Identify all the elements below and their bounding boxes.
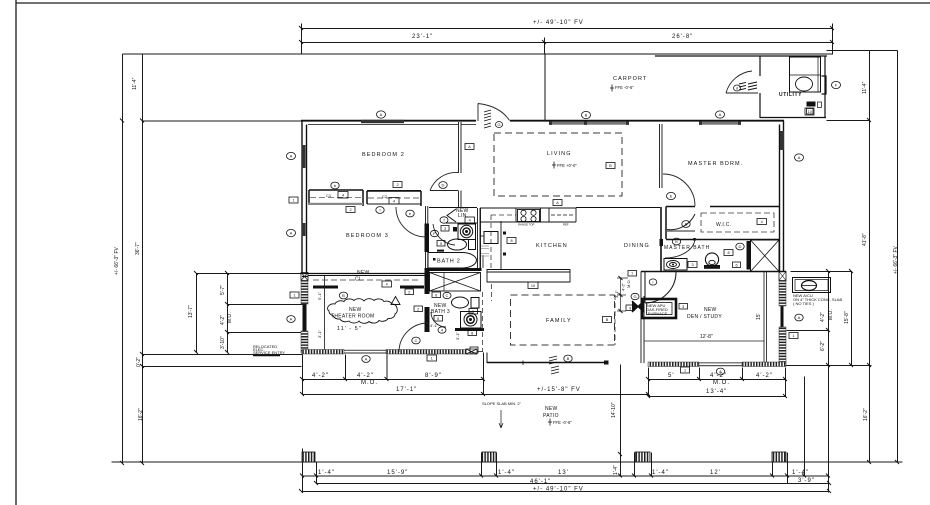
svg-text:+/-15'-8" FV: +/-15'-8" FV (537, 387, 581, 393)
svg-text:5: 5 (437, 317, 439, 321)
svg-text:D: D (442, 183, 445, 188)
svg-text:FURNACE: FURNACE (648, 311, 668, 316)
svg-text:A: A (798, 315, 801, 320)
svg-text:+/- 66'-3" FV: +/- 66'-3" FV (114, 246, 120, 275)
svg-text:1: 1 (292, 199, 294, 203)
svg-text:d: d (736, 86, 738, 91)
svg-text:2: 2 (408, 291, 410, 295)
svg-text:17'-1": 17'-1" (396, 387, 417, 393)
svg-text:M.O.: M.O. (713, 380, 730, 386)
svg-text:BATH 3: BATH 3 (431, 309, 450, 315)
svg-text:4'-2": 4'-2" (756, 373, 773, 379)
svg-text:+/- 49'-10" FV: +/- 49'-10" FV (533, 487, 584, 493)
svg-text:LIVING: LIVING (547, 151, 572, 157)
svg-text:FFE -0'-6": FFE -0'-6" (553, 420, 572, 425)
svg-text:1: 1 (431, 357, 433, 361)
svg-text:D: D (739, 244, 742, 249)
svg-text:3: 3 (444, 227, 446, 231)
svg-text:MASTER BATH: MASTER BATH (664, 245, 710, 251)
svg-text:15'-8": 15'-8" (844, 311, 850, 324)
svg-text:M.O.: M.O. (361, 380, 378, 386)
svg-text:PATIO: PATIO (543, 413, 559, 419)
svg-text:3: 3 (472, 310, 474, 314)
svg-text:11'-4": 11'-4" (862, 81, 868, 94)
svg-text:4: 4 (469, 219, 471, 223)
svg-text:12'-8": 12'-8" (700, 334, 713, 340)
svg-text:3: 3 (691, 263, 693, 267)
svg-text:C1: C1 (326, 193, 332, 198)
svg-text:B: B (567, 356, 570, 361)
svg-text:14'-10": 14'-10" (611, 402, 617, 418)
svg-text:3: 3 (682, 305, 684, 309)
svg-text:6'-2": 6'-2" (820, 341, 826, 351)
svg-text:6: 6 (435, 294, 437, 298)
svg-text:FFE +0'-0": FFE +0'-0" (557, 163, 577, 168)
svg-text:4'-2": 4'-2" (220, 315, 226, 325)
svg-text:4'-1": 4'-1" (430, 323, 439, 328)
svg-text:13': 13' (558, 470, 569, 476)
svg-text:16'-2": 16'-2" (863, 408, 869, 421)
svg-text:REF: REF (563, 223, 569, 227)
svg-text:4'-2": 4'-2" (312, 373, 329, 379)
svg-text:A: A (290, 231, 293, 236)
svg-text:A: A (290, 317, 293, 322)
svg-text:26'-8": 26'-8" (672, 34, 693, 40)
svg-text:A: A (290, 154, 293, 159)
svg-text:3'-10": 3'-10" (220, 336, 226, 349)
svg-text:11'-4": 11'-4" (132, 77, 138, 90)
svg-text:+/- 66'-3" FV: +/- 66'-3" FV (893, 245, 899, 274)
svg-text:G: G (497, 122, 500, 127)
svg-text:13'-4": 13'-4" (706, 389, 727, 395)
svg-text:THEATER ROOM: THEATER ROOM (331, 314, 375, 320)
svg-text:SERVICE ENTRY: SERVICE ENTRY (253, 350, 285, 355)
svg-text:KITCHEN: KITCHEN (536, 243, 568, 249)
svg-text:G: G (633, 294, 636, 299)
svg-text:BEDROOM 3: BEDROOM 3 (346, 233, 389, 239)
svg-text:8: 8 (471, 332, 473, 336)
svg-text:41'-8": 41'-8" (862, 233, 868, 246)
svg-text:5: 5 (440, 242, 442, 246)
svg-text:4: 4 (342, 194, 344, 198)
svg-text:A: A (380, 112, 383, 117)
svg-text:1: 1 (684, 369, 686, 373)
svg-text:3'-1": 3'-1" (317, 329, 322, 338)
svg-text:1'-4": 1'-4" (652, 470, 669, 476)
svg-text:NEW: NEW (704, 307, 717, 313)
svg-text:A: A (468, 145, 471, 149)
svg-text:CL.: CL. (355, 277, 364, 283)
svg-text:NEW: NEW (545, 406, 558, 412)
svg-text:NEW: NEW (357, 270, 370, 276)
svg-text:16'-2": 16'-2" (138, 408, 144, 421)
svg-text:FAMILY: FAMILY (546, 318, 572, 324)
svg-text:5'-1": 5'-1" (317, 291, 322, 300)
svg-text:BATH 2: BATH 2 (437, 259, 461, 265)
svg-text:A: A (556, 201, 559, 205)
svg-text:MASTER BDRM.: MASTER BDRM. (688, 161, 743, 167)
svg-text:1: 1 (792, 334, 794, 338)
svg-text:B: B (342, 293, 345, 298)
svg-text:( NO TIES ): ( NO TIES ) (793, 301, 814, 306)
svg-text:B: B (609, 164, 612, 168)
svg-text:8: 8 (510, 239, 512, 243)
svg-text:DINING: DINING (624, 243, 650, 249)
svg-text:10: 10 (808, 110, 812, 114)
svg-text:3'-1": 3'-1" (614, 289, 619, 298)
svg-text:8: 8 (727, 251, 729, 255)
svg-text:CARPORT: CARPORT (613, 76, 648, 82)
svg-text:B: B (685, 222, 688, 227)
svg-text:4: 4 (386, 283, 388, 287)
svg-text:I: I (379, 208, 380, 213)
svg-text:FFE -0'-6": FFE -0'-6" (615, 85, 634, 90)
svg-text:46'-1": 46'-1" (530, 479, 551, 485)
svg-text:UTILITY: UTILITY (779, 92, 802, 98)
svg-text:2: 2 (349, 208, 351, 212)
svg-text:C: C (415, 338, 418, 343)
svg-text:DEN / STUDY: DEN / STUDY (687, 314, 722, 320)
svg-text:7: 7 (631, 272, 633, 276)
svg-text:12': 12' (710, 470, 721, 476)
svg-text:C2: C2 (382, 194, 388, 199)
svg-text:E: E (670, 194, 673, 199)
svg-text:1'-4": 1'-4" (792, 470, 809, 476)
svg-text:5'-7": 5'-7" (220, 285, 226, 295)
svg-text:A: A (798, 155, 801, 160)
svg-text:LIN.: LIN. (458, 213, 468, 219)
svg-text:11' - 5": 11' - 5" (337, 326, 362, 332)
svg-text:2: 2 (396, 183, 398, 187)
svg-text:8'-9": 8'-9" (425, 373, 442, 379)
svg-text:9: 9 (629, 307, 631, 311)
svg-text:RANGE TOP: RANGE TOP (518, 223, 535, 227)
svg-text:10: 10 (531, 284, 535, 288)
svg-text:1'-4": 1'-4" (498, 470, 515, 476)
svg-text:A: A (719, 112, 722, 117)
svg-text:15'-9": 15'-9" (387, 470, 408, 476)
svg-text:15': 15' (756, 313, 762, 320)
svg-text:B: B (585, 113, 588, 118)
svg-text:3'-1": 3'-1" (455, 331, 460, 340)
svg-text:SLOPE SLAB MIN. 2": SLOPE SLAB MIN. 2" (482, 401, 522, 406)
svg-text:4'-2": 4'-2" (621, 282, 626, 291)
svg-text:i: i (653, 280, 654, 285)
svg-text:4: 4 (393, 200, 395, 204)
svg-text:BEDROOM 2: BEDROOM 2 (362, 152, 405, 158)
svg-text:5': 5' (668, 373, 674, 379)
svg-text:M.O.: M.O. (227, 312, 233, 323)
svg-text:+/- 49'-10" FV: +/- 49'-10" FV (533, 20, 584, 26)
svg-text:1: 1 (293, 294, 295, 298)
svg-text:4: 4 (761, 220, 763, 224)
svg-text:4'-2": 4'-2" (820, 312, 826, 322)
svg-text:4'-2": 4'-2" (357, 373, 374, 379)
svg-text:M.O.: M.O. (828, 309, 834, 320)
svg-text:36'-7": 36'-7" (135, 242, 141, 255)
svg-text:13'-7": 13'-7" (188, 305, 194, 318)
svg-text:2: 2 (417, 308, 419, 312)
svg-text:A: A (365, 357, 368, 362)
svg-text:M.O.: M.O. (626, 279, 631, 288)
svg-text:A: A (719, 369, 722, 374)
svg-text:C: C (446, 293, 449, 298)
svg-text:23'-1": 23'-1" (412, 34, 433, 40)
svg-text:B: B (606, 318, 609, 322)
svg-text:NEW: NEW (349, 307, 362, 313)
svg-text:1'-4": 1'-4" (318, 470, 335, 476)
svg-text:6: 6 (735, 264, 737, 268)
svg-text:3'-9": 3'-9" (798, 478, 815, 484)
svg-text:W.I.C.: W.I.C. (716, 222, 731, 228)
